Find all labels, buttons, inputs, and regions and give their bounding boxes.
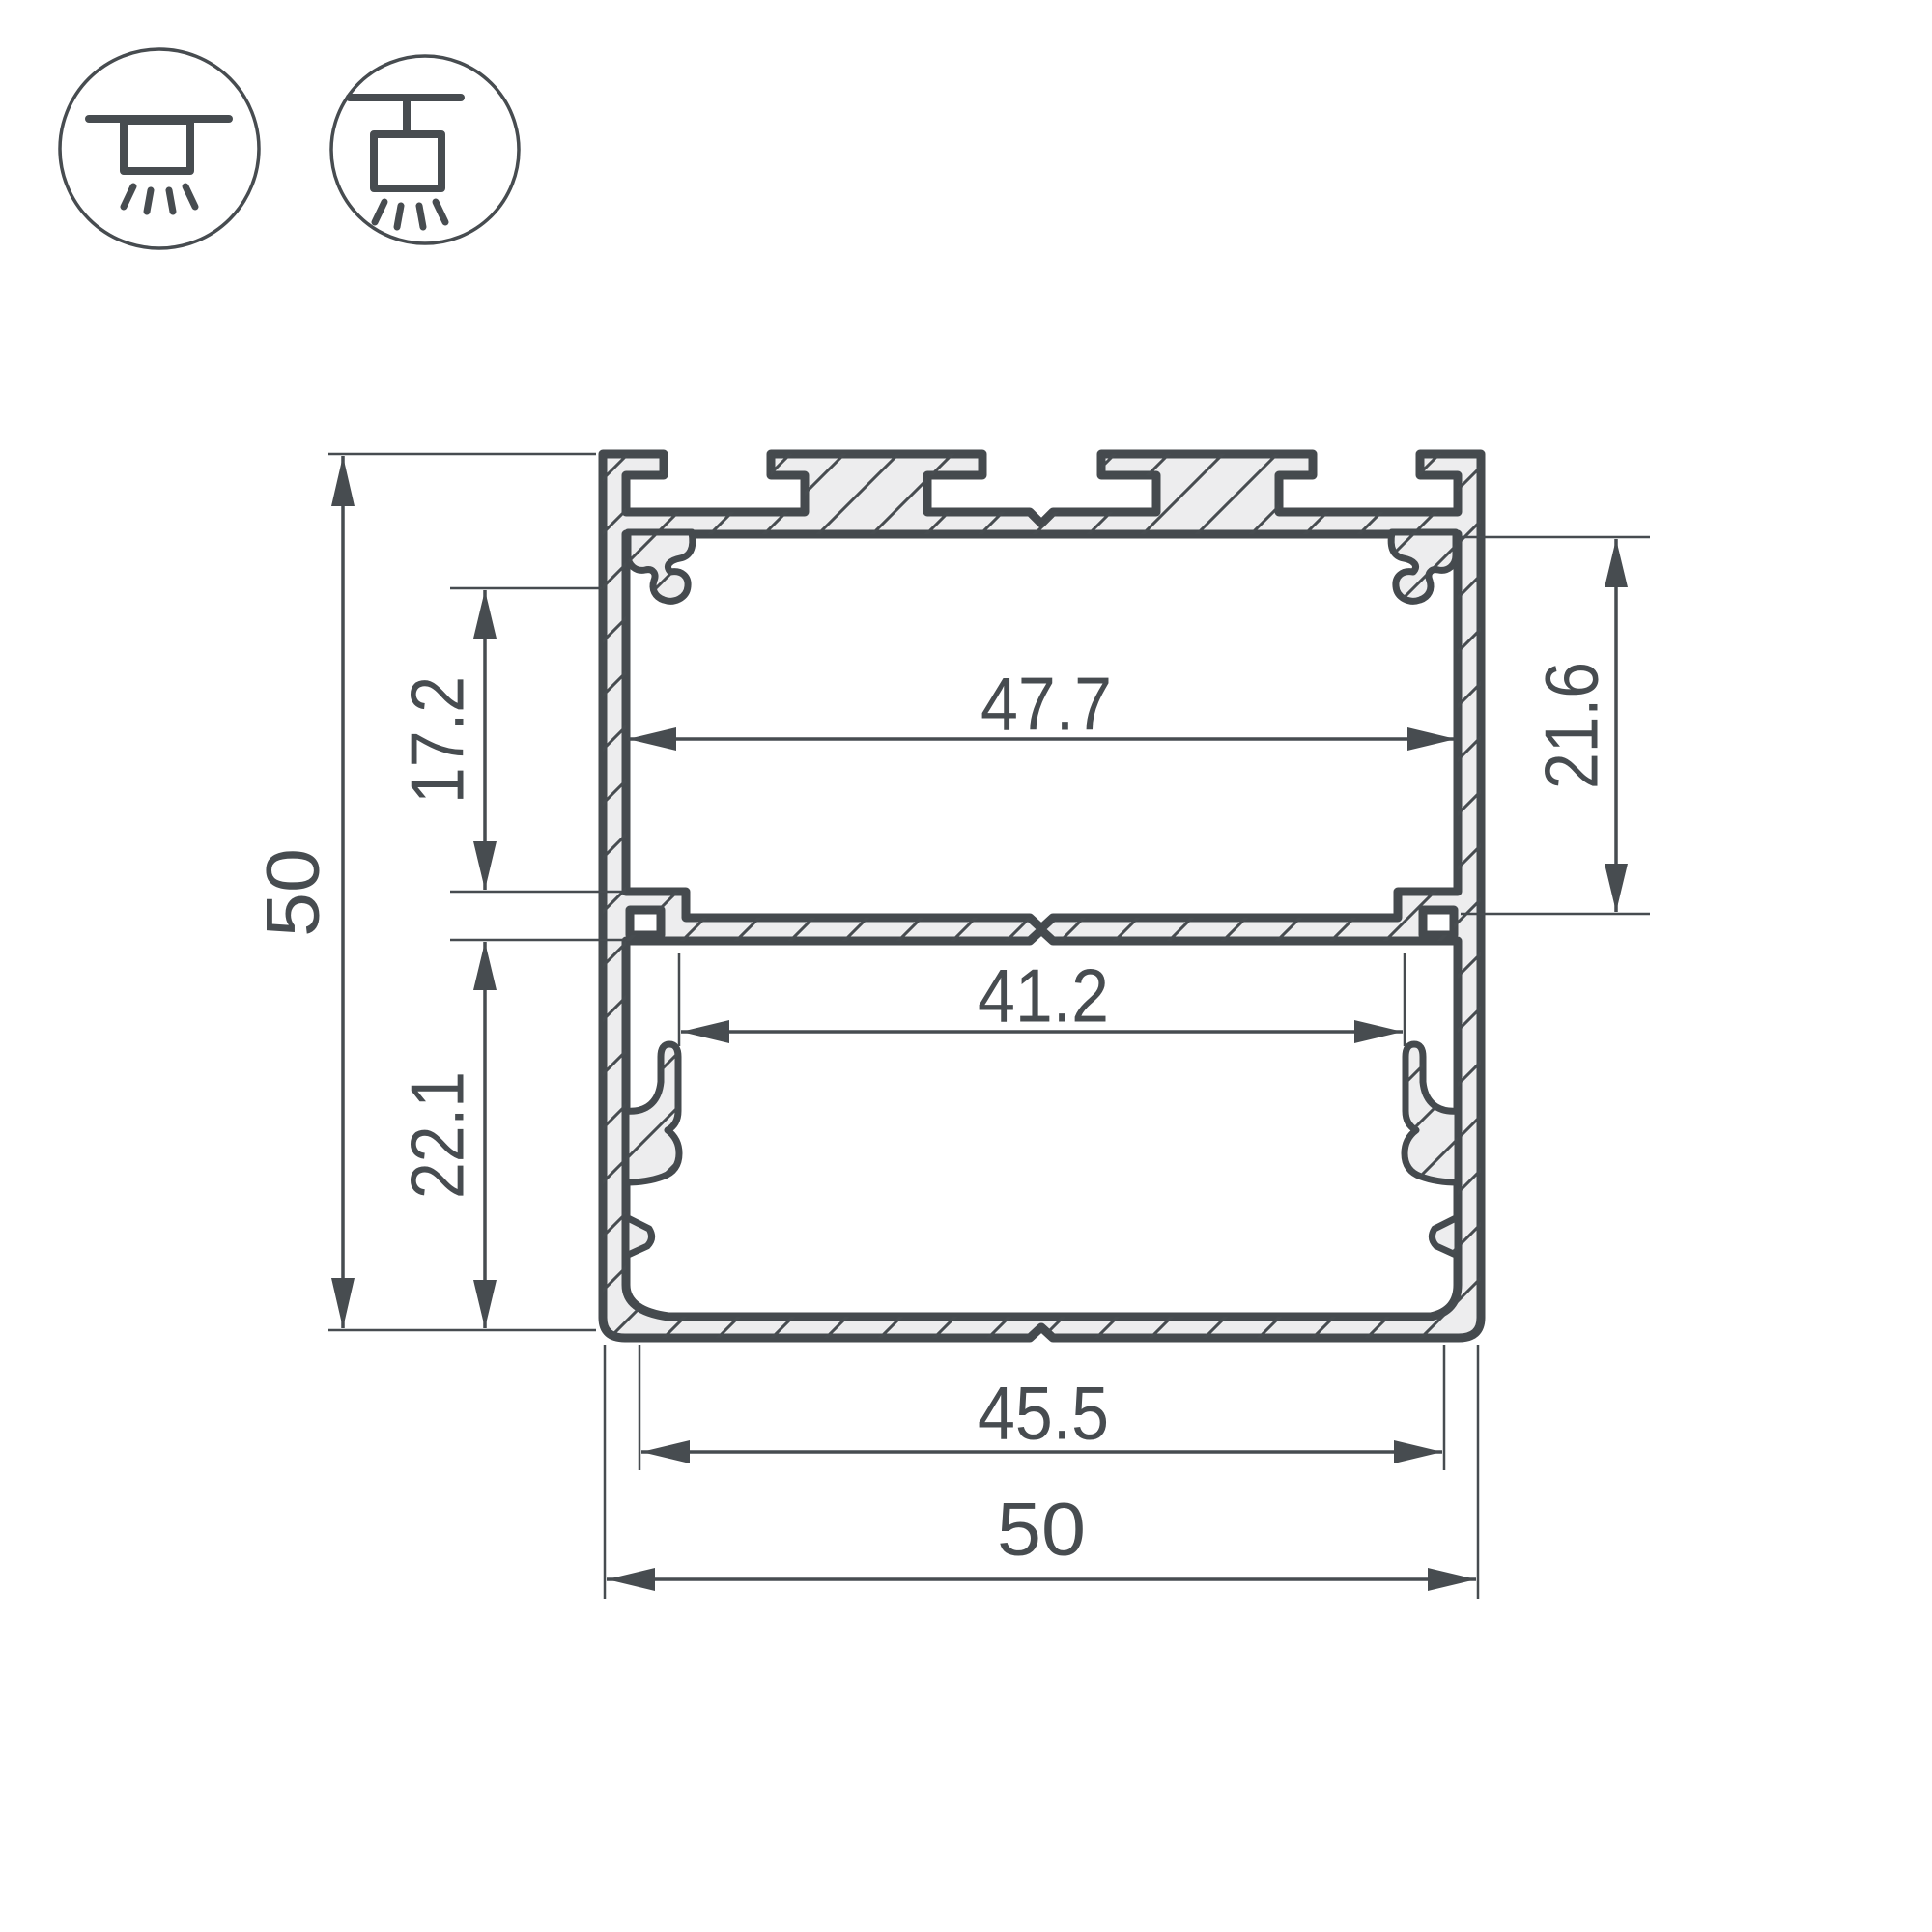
profile-drawing-svg: 50 17.2 22.1 21.6 <box>0 0 1932 1932</box>
profile-cross-section <box>603 454 1481 1338</box>
dim-label-right-inner-height: 21.6 <box>1528 662 1613 789</box>
dim-middle-inner-width: 41.2 <box>679 952 1405 1046</box>
dim-right-inner-height: 21.6 <box>1461 537 1650 914</box>
profile-hatching <box>603 454 1481 1338</box>
dim-label-upper-inner-width: 47.7 <box>980 661 1112 746</box>
dim-label-upper-inner-height: 17.2 <box>394 676 479 804</box>
side-spring-clip-left <box>626 1044 679 1182</box>
top-clip-hook-right <box>1391 532 1456 601</box>
technical-drawing-page: 50 17.2 22.1 21.6 <box>0 0 1932 1932</box>
side-spring-clip-right <box>1405 1044 1458 1182</box>
retaining-tooth-left <box>626 1217 652 1256</box>
dim-lower-inner-height: 22.1 <box>394 940 623 1328</box>
profile-body <box>603 454 1481 1338</box>
dim-label-overall-width: 50 <box>997 1486 1086 1571</box>
dim-label-overall-height: 50 <box>249 848 334 937</box>
top-clip-hook-left <box>628 532 693 601</box>
dim-upper-inner-width: 47.7 <box>628 661 1456 751</box>
dim-label-middle-inner-width: 41.2 <box>978 952 1109 1037</box>
retaining-tooth-right <box>1432 1217 1458 1256</box>
dim-bottom-inner-width: 45.5 <box>639 1345 1444 1470</box>
mount-icons <box>60 49 519 248</box>
surface-mount-icon <box>60 49 259 248</box>
dim-label-bottom-inner-width: 45.5 <box>978 1370 1109 1455</box>
dim-upper-inner-height: 17.2 <box>394 588 623 892</box>
pendant-mount-icon <box>331 56 519 243</box>
dim-label-lower-inner-height: 22.1 <box>394 1071 479 1199</box>
dimension-annotations: 50 17.2 22.1 21.6 <box>249 454 1650 1599</box>
